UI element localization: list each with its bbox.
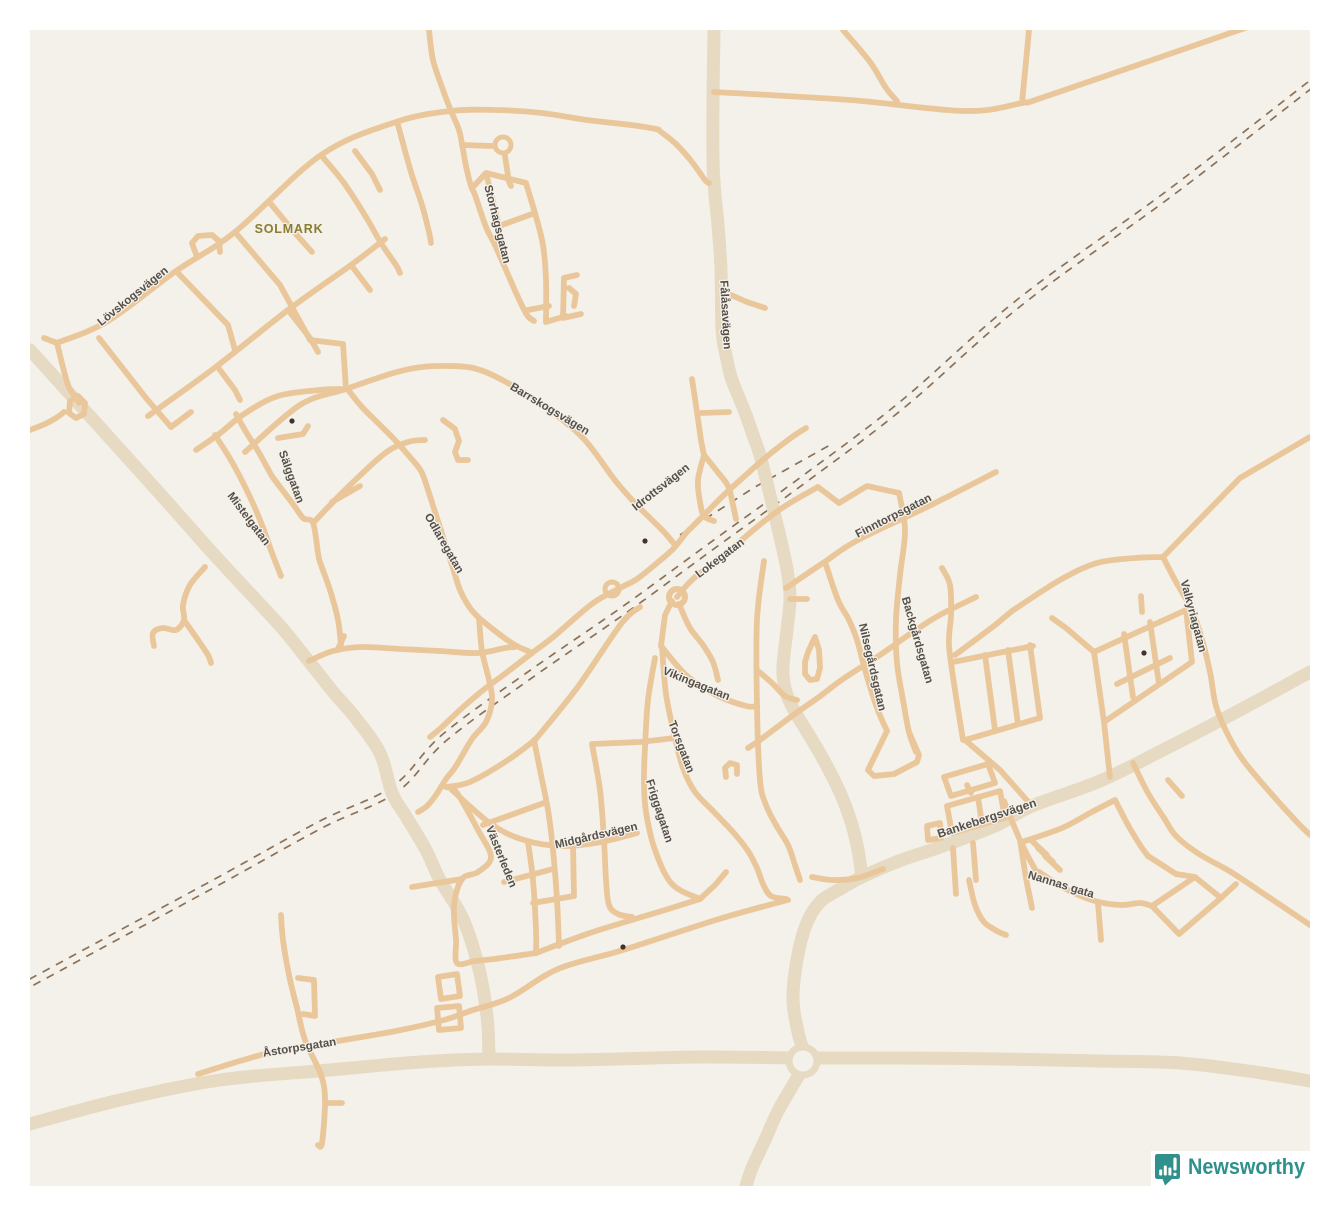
svg-text:Newsworthy: Newsworthy xyxy=(1188,1154,1306,1179)
svg-text:SOLMARK: SOLMARK xyxy=(255,222,324,236)
